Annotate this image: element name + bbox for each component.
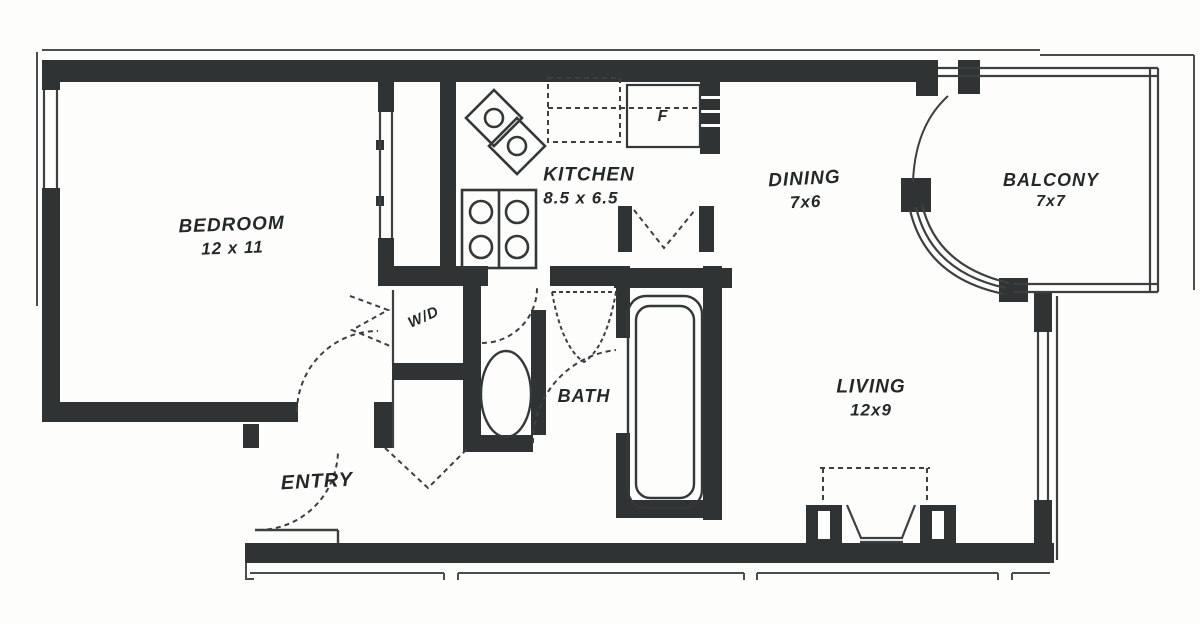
counter-outline [548, 78, 700, 142]
bedroom-dims: 12 x 11 [179, 235, 286, 260]
dining-label: DINING 7x6 [768, 166, 843, 215]
coat-closet-door [385, 448, 468, 488]
refrigerator-label: F [658, 107, 669, 127]
vanity-door-swing [482, 288, 537, 343]
bath-label: BATH [558, 385, 611, 408]
bedroom-name: BEDROOM [178, 213, 285, 238]
balcony-door-swing [913, 96, 948, 182]
living-label: LIVING 12x9 [836, 376, 905, 421]
kitchen-label: KITCHEN 8.5 x 6.5 [543, 164, 634, 209]
floor-plan: BEDROOM 12 x 11 KITCHEN 8.5 x 6.5 DINING… [0, 0, 1200, 624]
balcony-label: BALCONY 7x7 [1003, 169, 1099, 212]
kitchen-name: KITCHEN [543, 165, 634, 186]
walls [42, 60, 1054, 563]
laundry-bifold-door [350, 296, 390, 346]
curved-window-wall [910, 204, 1009, 294]
kitchen-dims: 8.5 x 6.5 [543, 187, 634, 208]
living-dims: 12x9 [836, 399, 905, 420]
door-swings [258, 96, 948, 530]
stove [462, 190, 536, 268]
entry-step [255, 530, 338, 543]
exterior-offset-lines [37, 50, 1194, 580]
bedroom-label: BEDROOM 12 x 11 [178, 212, 286, 261]
living-name: LIVING [836, 377, 905, 398]
balcony-name: BALCONY [1003, 170, 1099, 190]
entry-label: ENTRY [280, 468, 354, 497]
pantry-bifold-door [634, 210, 695, 248]
dining-name: DINING [768, 167, 841, 192]
toilet [481, 351, 531, 437]
fireplace [806, 468, 956, 545]
dining-dims: 7x6 [769, 189, 843, 214]
windows [44, 90, 1057, 560]
balcony-dims: 7x7 [1003, 191, 1099, 211]
bedroom-door-swing [297, 331, 378, 412]
kitchen-sink [466, 90, 545, 174]
floor-plan-drawing [0, 0, 1200, 624]
bathtub [628, 296, 702, 508]
